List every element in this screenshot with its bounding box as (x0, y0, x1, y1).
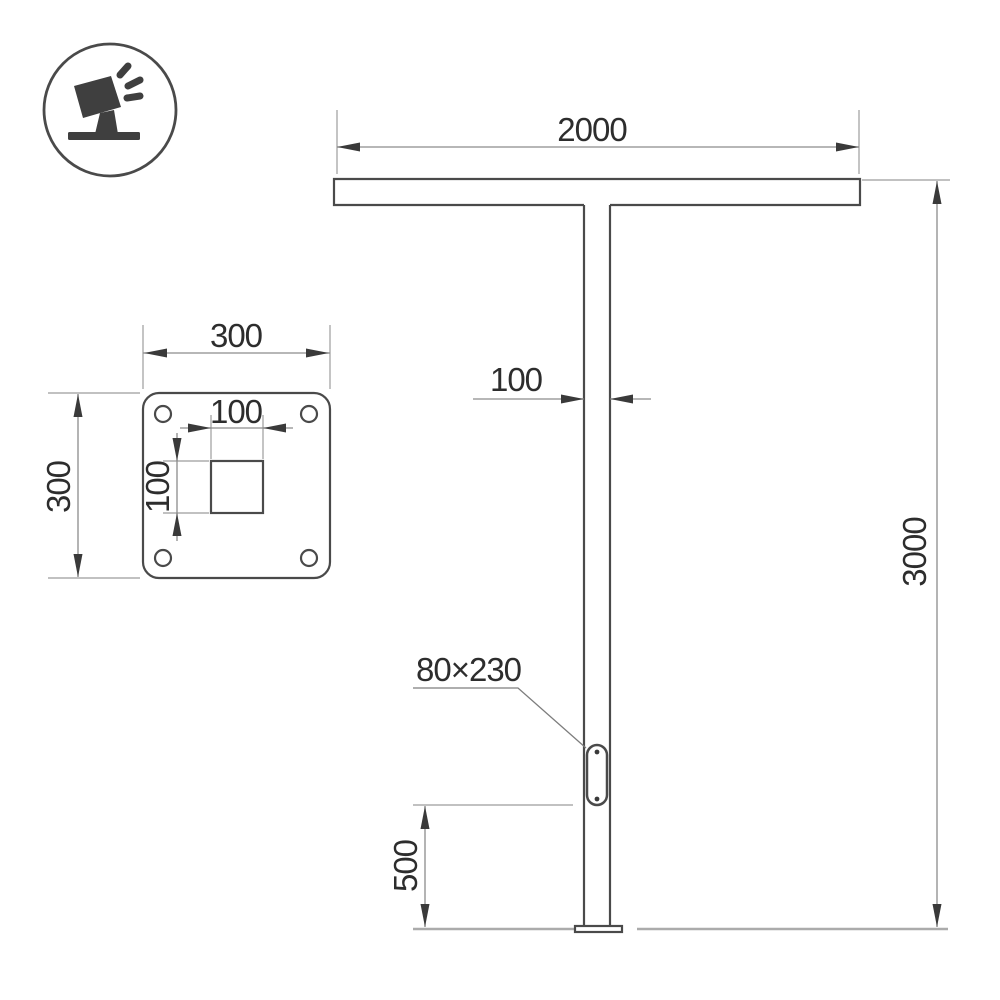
square-hole-outline (211, 461, 263, 513)
dim-plate-width-label: 300 (210, 317, 263, 354)
label-service-opening: 80×230 (413, 651, 586, 748)
crossbar-outline (334, 179, 860, 205)
leader-line (413, 688, 586, 748)
dim-crossbar-width-label: 2000 (557, 111, 627, 148)
dim-pole-width-label: 100 (490, 361, 543, 398)
dim-plate-height-label: 300 (40, 460, 77, 513)
dim-crossbar-width: 2000 (337, 110, 859, 174)
bolt-hole-bottom-right (301, 550, 317, 566)
dim-plate-height: 300 (40, 393, 140, 578)
dim-pole-height-label: 3000 (896, 517, 933, 587)
floodlight-icon (44, 44, 176, 176)
dim-opening-height: 500 (387, 805, 573, 927)
dim-square-hole-height-label: 100 (139, 460, 176, 513)
service-opening-label: 80×230 (416, 651, 522, 688)
dim-square-hole-height: 100 (139, 433, 209, 541)
dim-plate-width: 300 (143, 317, 330, 389)
dim-square-hole-width: 100 (180, 393, 293, 459)
drawing-page: 2000 100 3000 80×230 500 (0, 0, 1000, 1000)
bolt-hole-top-left (155, 406, 171, 422)
floodlight-base-icon (68, 132, 140, 140)
service-opening-screw-bottom (595, 797, 600, 802)
technical-drawing-canvas: 2000 100 3000 80×230 500 (0, 0, 1000, 1000)
base-plate-side-view (575, 926, 622, 932)
dim-opening-height-label: 500 (387, 839, 424, 892)
light-ray-icon (127, 96, 140, 98)
service-opening-screw-top (595, 750, 600, 755)
dim-square-hole-width-label: 100 (210, 393, 263, 430)
bolt-hole-top-right (301, 406, 317, 422)
bolt-hole-bottom-left (155, 550, 171, 566)
dim-pole-width: 100 (473, 361, 651, 404)
dim-pole-height: 3000 (862, 180, 950, 927)
